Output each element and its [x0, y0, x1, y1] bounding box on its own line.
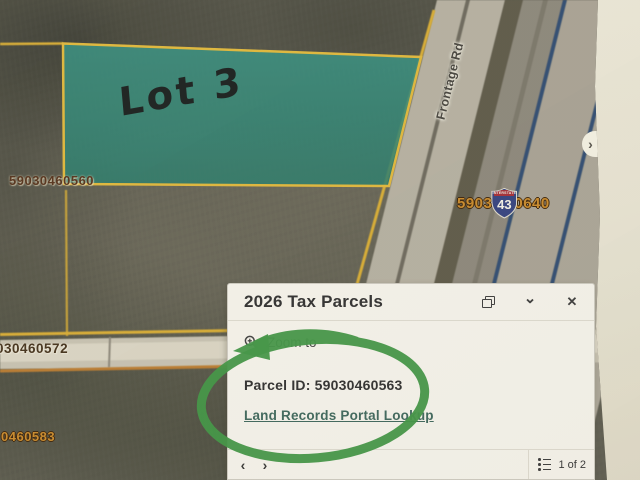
- popup-footer: ‹ › 1 of 2: [228, 449, 594, 479]
- parcel-label: 59030460560: [9, 173, 94, 188]
- parcel-label-right: 0640: [514, 195, 549, 212]
- feature-list-icon[interactable]: [538, 458, 551, 471]
- parcel-label-with-shield: 5903 INTERSTATE 43 0640: [457, 187, 550, 219]
- dock-button[interactable]: [480, 294, 496, 310]
- next-feature-button[interactable]: ›: [254, 457, 276, 473]
- page-indicator: 1 of 2: [558, 459, 586, 471]
- parcel-id-text: Parcel ID: 59030460563: [244, 377, 578, 393]
- previous-feature-button[interactable]: ‹: [232, 457, 254, 473]
- parcel-label: 030460572: [0, 341, 68, 356]
- interstate-43-shield-icon: INTERSTATE 43: [491, 188, 517, 219]
- tax-parcels-popup: 2026 Tax Parcels ⌄ ✕ Zoom to Parcel ID: …: [227, 283, 595, 480]
- parcel-label: 0460583: [1, 429, 55, 444]
- parcel-label-left: 5903: [457, 195, 492, 212]
- dock-icon: [482, 296, 495, 308]
- zoom-to-button[interactable]: Zoom to: [228, 321, 333, 353]
- collapse-button[interactable]: ⌄: [522, 291, 538, 307]
- popup-header: 2026 Tax Parcels ⌄ ✕: [228, 284, 594, 321]
- feature-pagination: 1 of 2: [528, 450, 594, 479]
- land-records-portal-link[interactable]: Land Records Portal Lookup: [244, 408, 434, 423]
- zoom-to-label: Zoom to: [267, 335, 317, 350]
- close-button[interactable]: ✕: [564, 294, 580, 310]
- magnifier-plus-icon: [244, 335, 258, 349]
- popup-title: 2026 Tax Parcels: [244, 292, 454, 312]
